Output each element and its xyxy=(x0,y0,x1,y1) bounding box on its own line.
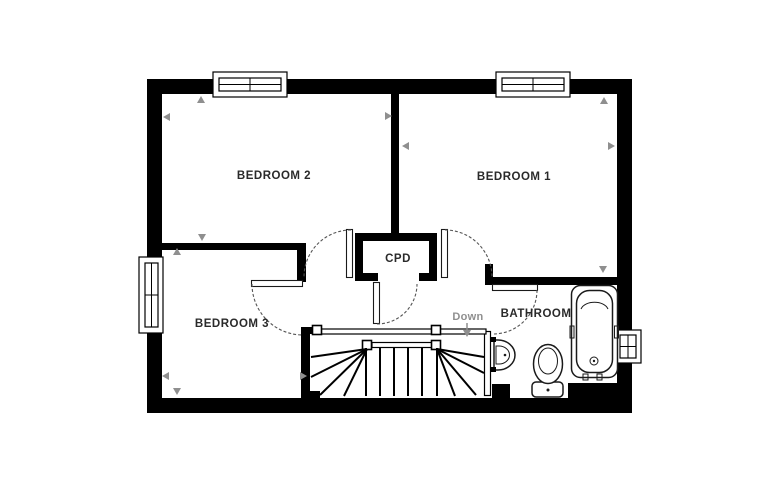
dimension-arrow-icon xyxy=(162,372,169,380)
stair-handrail-inner xyxy=(372,343,433,348)
stair-stringer xyxy=(485,332,491,396)
wall-bed1-bed2 xyxy=(391,94,399,233)
dimension-arrow-icon xyxy=(385,112,392,120)
dimension-arrow-icon xyxy=(197,96,205,103)
dimension-arrow-icon xyxy=(163,113,170,121)
dimension-arrow-icon xyxy=(173,388,181,395)
bathroom-label: BATHROOM xyxy=(501,308,572,320)
stair-handrail-outer xyxy=(317,329,486,334)
bath-recess-wall xyxy=(568,383,617,398)
door-bedroom2 xyxy=(304,230,353,278)
sink xyxy=(491,337,515,372)
window-top-right xyxy=(496,72,570,97)
door-bedroom1 xyxy=(442,230,493,278)
wall-bathroom-top xyxy=(485,277,617,285)
bedroom2-label: BEDROOM 2 xyxy=(237,170,311,182)
bedroom3-label: BEDROOM 3 xyxy=(195,318,269,330)
toilet xyxy=(532,345,563,398)
stair-treads xyxy=(311,348,484,396)
down-direction-arrow-icon xyxy=(463,323,471,337)
stairs-down-label: Down xyxy=(452,311,483,323)
dimension-arrow-icon xyxy=(608,142,615,150)
dimension-arrow-icon xyxy=(402,142,409,150)
dimension-arrow-icon xyxy=(198,234,206,241)
staircase xyxy=(311,323,491,396)
floor-plan: BEDROOM 2 BEDROOM 1 BEDROOM 3 BATHROOM C… xyxy=(0,0,780,489)
wall-bed2-bed3 xyxy=(162,243,298,250)
dimension-arrow-icon xyxy=(600,97,608,104)
dimension-arrow-icon xyxy=(599,266,607,273)
bedroom1-label: BEDROOM 1 xyxy=(477,171,551,183)
wall-bed3-stairs xyxy=(301,327,310,398)
floor-plan-canvas: BEDROOM 2 BEDROOM 1 BEDROOM 3 BATHROOM C… xyxy=(0,0,780,489)
cupboard-label: CPD xyxy=(385,253,411,265)
door-cupboard xyxy=(374,283,418,325)
window-left xyxy=(139,257,163,333)
bath xyxy=(570,286,619,381)
cupboard-wall-top xyxy=(355,233,437,241)
window-top-left xyxy=(213,72,287,97)
